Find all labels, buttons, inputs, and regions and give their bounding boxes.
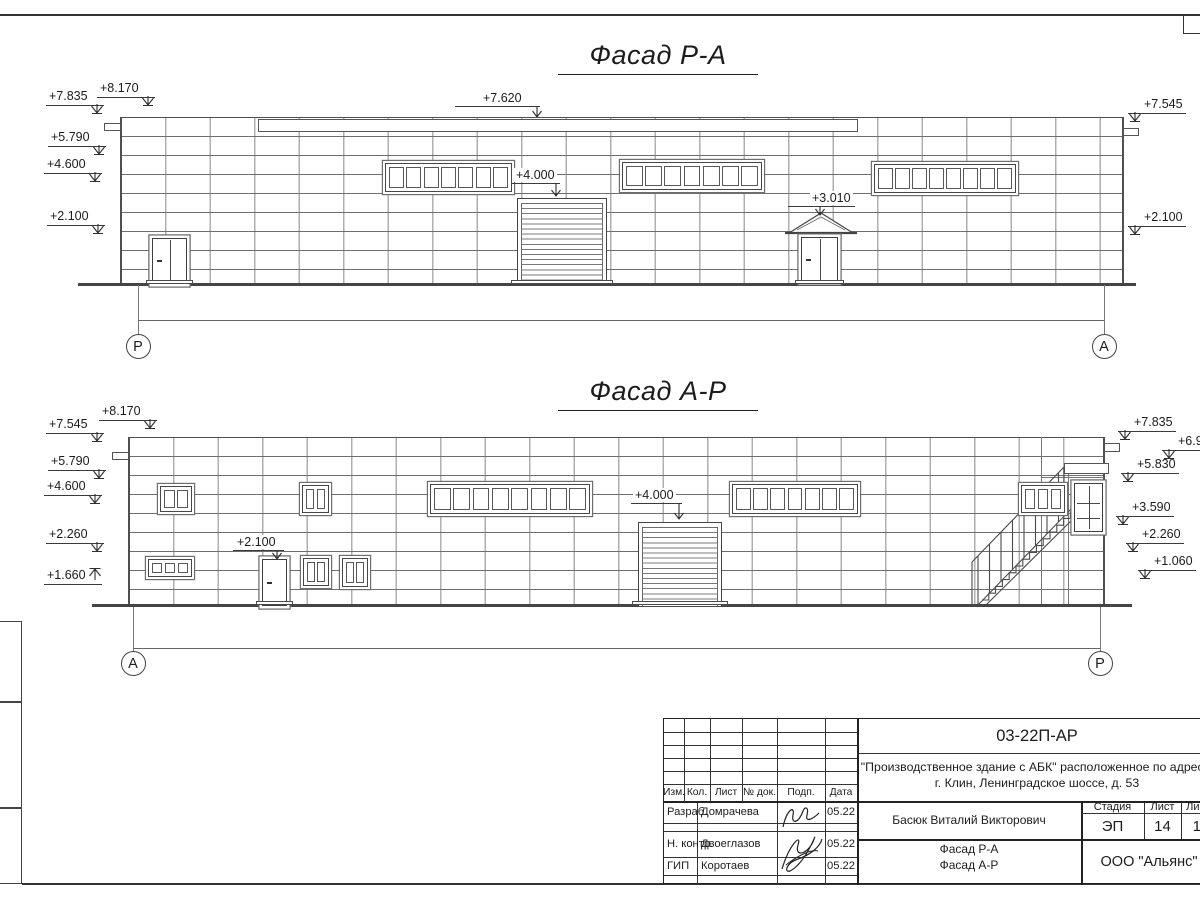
elevation-arrow-icon [87, 494, 103, 508]
axis-line [1104, 285, 1105, 334]
door-leaf-split [170, 240, 171, 282]
elevation-value: +3.010 [810, 191, 853, 205]
elevation-value: +4.000 [633, 488, 676, 502]
elevation-mark: +5.830 [1121, 457, 1179, 474]
person-date: 05.22 [825, 837, 857, 851]
elevation-arrow-icon [1127, 225, 1143, 239]
elevation-mark: +4.600 [44, 479, 102, 496]
window-pane [645, 166, 662, 186]
window-pane [492, 488, 509, 510]
double-door [152, 238, 187, 284]
filing-box-3 [0, 808, 22, 884]
gutter-stub [1104, 443, 1120, 452]
window-pane [741, 166, 758, 186]
sheets-total: 19 [1181, 813, 1200, 839]
door [262, 559, 287, 606]
title-block: 03-22П-АР "Производственное здание с АБК… [663, 718, 1200, 884]
roller-gate [638, 522, 722, 607]
elevation-mark: +7.835 [46, 89, 104, 106]
facade-ra-fascia-band [258, 119, 858, 132]
roller-gate-slats [521, 203, 603, 283]
leader-arrow-icon [531, 106, 543, 118]
window-pane [722, 166, 739, 186]
stage-label: Стадия [1081, 801, 1144, 813]
window-pane [703, 166, 720, 186]
window-pane [788, 488, 803, 510]
window-pane [152, 563, 162, 573]
axis-marker-circle: А [1092, 334, 1117, 359]
drawing-title-line2: Фасад А-Р [857, 857, 1081, 873]
dimension-line [138, 320, 1104, 321]
leader-arrow-icon [550, 183, 562, 197]
sheet-number: 14 [1144, 813, 1181, 839]
leader-arrow-icon [814, 206, 826, 216]
company-name: ООО "Альянс" [1081, 839, 1200, 885]
window-pane [684, 166, 701, 186]
window-pane [389, 167, 404, 188]
person-name: Коротаев [699, 859, 776, 873]
sheets-label: Листов [1181, 801, 1200, 813]
elevation-arrow-icon [140, 96, 156, 110]
window-band [622, 162, 762, 190]
person-role: Разраб. [665, 805, 697, 819]
person-role: Н. контр. [665, 837, 697, 851]
window-pane [626, 166, 643, 186]
window-pane [346, 562, 354, 583]
axis-marker-circle: Р [1088, 651, 1113, 676]
window-pane [770, 488, 785, 510]
elevation-mark: +7.545 [1128, 97, 1186, 114]
door-handle [267, 582, 272, 584]
elevation-arrow-icon [87, 172, 103, 186]
signature [776, 831, 824, 875]
window-band [732, 484, 858, 514]
window-pane [980, 168, 995, 189]
facade-ra-building [120, 117, 1124, 285]
elevation-mark: +2.100 [47, 209, 105, 226]
elevation-mark: +3.590 [1116, 500, 1174, 517]
window-pane [424, 167, 439, 188]
window-pane [511, 488, 528, 510]
window [148, 559, 192, 577]
window-pane [839, 488, 854, 510]
leader-line [455, 106, 540, 107]
window-pane [1038, 489, 1048, 509]
window [302, 485, 329, 513]
door-mullion [1089, 486, 1090, 529]
window [303, 558, 329, 586]
window-pane [753, 488, 768, 510]
window-pane [550, 488, 567, 510]
window-pane [441, 167, 456, 188]
elevation-mark: +2.100 [1128, 210, 1186, 227]
window-pane [664, 166, 681, 186]
elevation-mark: +2.260 [1126, 527, 1184, 544]
window-pane [406, 167, 421, 188]
axis-marker-circle: Р [126, 334, 151, 359]
window-pane [912, 168, 927, 189]
door-handle [157, 260, 162, 262]
window-pane [946, 168, 961, 189]
elevation-mark: +7.835 [1118, 415, 1176, 432]
facade-ra-title: Фасад Р-А [558, 40, 758, 75]
window-pane [805, 488, 820, 510]
stage-value: ЭП [1081, 813, 1144, 839]
ground-line [92, 604, 1132, 607]
elevation-value: +2.100 [235, 535, 278, 549]
window-pane [317, 489, 325, 509]
window-pane [164, 490, 175, 508]
elevation-arrow-icon [87, 567, 103, 581]
window-pane [997, 168, 1012, 189]
filing-box-2 [0, 702, 22, 808]
doc-number: 03-22П-АР [857, 719, 1200, 753]
elevation-mark: +8.170 [99, 404, 157, 421]
window-pane [963, 168, 978, 189]
window-pane [895, 168, 910, 189]
window-pane [476, 167, 491, 188]
window-pane [569, 488, 586, 510]
axis-line [133, 607, 134, 651]
threshold [795, 280, 844, 284]
leader-arrow-icon [271, 550, 283, 560]
window-pane [177, 490, 188, 508]
axis-line [1100, 607, 1101, 651]
window-pane [178, 563, 188, 573]
elevation-arrow-icon [1117, 430, 1133, 444]
double-door [801, 237, 838, 282]
gutter-stub [1123, 128, 1139, 136]
roller-gate [517, 198, 607, 284]
elevation-arrow-icon [89, 542, 105, 556]
door-mullion [1077, 503, 1100, 504]
window-pane [493, 167, 508, 188]
elevation-mark: +5.790 [48, 130, 106, 147]
window [342, 558, 368, 587]
sheet-label: Лист [1144, 801, 1181, 813]
sheet-corner-box [1183, 15, 1200, 34]
drawing-title-line1: Фасад Р-А [857, 841, 1081, 857]
elevation-arrow-icon [1120, 472, 1136, 486]
person-date: 05.22 [825, 859, 857, 873]
window-pane [473, 488, 490, 510]
window [1021, 485, 1065, 513]
elevation-arrow-icon [142, 419, 158, 433]
filing-box-1 [0, 621, 22, 702]
window-pane [929, 168, 944, 189]
door-leaf-split [820, 239, 821, 280]
window-pane [878, 168, 893, 189]
window-pane [317, 562, 325, 582]
gutter-stub [104, 123, 121, 131]
drawing-sheet: Фасад Р-А Фасад А-Р [0, 0, 1200, 900]
window-pane [165, 563, 175, 573]
rev-header-list: Лист [710, 784, 742, 801]
person-date: 05.22 [825, 805, 857, 819]
facade-ar-title: Фасад А-Р [558, 376, 758, 411]
elevation-arrow-icon [1137, 569, 1153, 583]
author-name: Басюк Виталий Викторович [857, 801, 1081, 839]
window-pane [458, 167, 473, 188]
axis-marker-circle: А [121, 651, 146, 676]
glazed-door [1074, 483, 1103, 532]
person-name: Домрачева [699, 805, 776, 819]
window-pane [434, 488, 451, 510]
project-name-line1: "Производственное здание с АБК" располож… [857, 759, 1200, 775]
project-name-line2: г. Клин, Ленинградское шоссе, д. 53 [857, 775, 1200, 790]
elevation-mark: +6.97 [1162, 434, 1200, 451]
rev-header-podp: Подп. [777, 784, 825, 801]
door-handle [806, 259, 811, 261]
rev-header-kol: Кол. [684, 784, 710, 801]
window-pane [356, 562, 364, 583]
threshold [256, 601, 293, 605]
window-pane [822, 488, 837, 510]
gutter-stub [112, 452, 129, 460]
window-pane [531, 488, 548, 510]
window-band [874, 164, 1016, 193]
elevation-mark: +2.260 [46, 527, 104, 544]
elevation-mark: +4.600 [44, 157, 102, 174]
window-pane [453, 488, 470, 510]
window [160, 486, 192, 512]
elevation-arrow-icon [89, 432, 105, 446]
sheet-frame-top [0, 14, 1200, 16]
elevation-value: +4.000 [514, 168, 557, 182]
window-band [385, 163, 512, 192]
axis-line [138, 285, 139, 334]
elevation-value: +7.620 [481, 91, 524, 105]
window-pane [306, 489, 314, 509]
dimension-line [133, 648, 1100, 649]
elevation-mark: +1.060 [1138, 554, 1196, 571]
window-pane [307, 562, 315, 582]
person-role: ГИП [665, 859, 697, 873]
rev-header-izm: Изм. [664, 784, 684, 801]
leader-arrow-icon [673, 503, 685, 520]
window-pane [1025, 489, 1035, 509]
elevation-mark: +1.660 [44, 568, 102, 585]
signature [779, 803, 823, 831]
elevation-arrow-icon [89, 104, 105, 118]
rev-header-data: Дата [825, 784, 857, 801]
window-pane [736, 488, 751, 510]
window-band [430, 484, 590, 514]
rev-header-ndok: № док. [742, 784, 777, 801]
person-name: Двоеглазов [699, 837, 776, 851]
threshold [511, 280, 613, 284]
elevation-arrow-icon [1127, 112, 1143, 126]
door-mullion [1077, 518, 1100, 519]
window-pane [1051, 489, 1061, 509]
elevation-mark: +5.790 [48, 454, 106, 471]
elevation-arrow-icon [90, 224, 106, 238]
threshold [146, 280, 193, 284]
roller-gate-slats [642, 527, 718, 606]
threshold [632, 601, 728, 605]
elevation-mark: +7.545 [46, 417, 104, 434]
elevation-mark: +8.170 [97, 81, 155, 98]
